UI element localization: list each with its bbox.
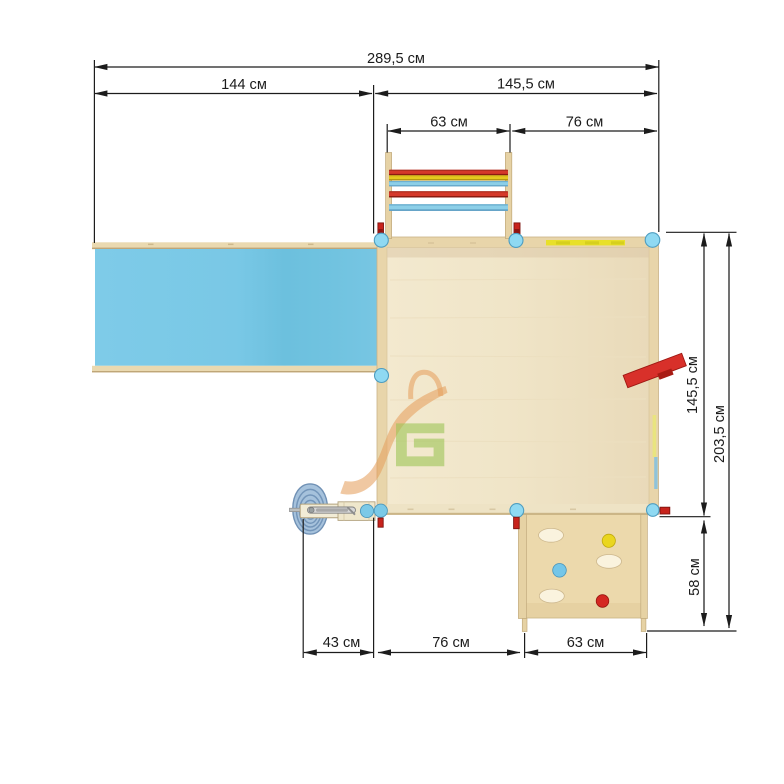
svg-text:76 см: 76 см: [432, 635, 470, 651]
svg-text:144 см: 144 см: [221, 77, 267, 93]
svg-text:145,5 см: 145,5 см: [497, 77, 555, 93]
svg-text:58 см: 58 см: [687, 558, 703, 596]
svg-text:76 см: 76 см: [566, 115, 604, 131]
svg-text:63 см: 63 см: [430, 115, 468, 131]
svg-text:145,5 см: 145,5 см: [685, 356, 701, 414]
svg-text:203,5 см: 203,5 см: [712, 405, 728, 463]
svg-text:289,5 см: 289,5 см: [367, 51, 425, 67]
svg-text:63 см: 63 см: [567, 635, 605, 651]
svg-text:43 см: 43 см: [323, 635, 361, 651]
